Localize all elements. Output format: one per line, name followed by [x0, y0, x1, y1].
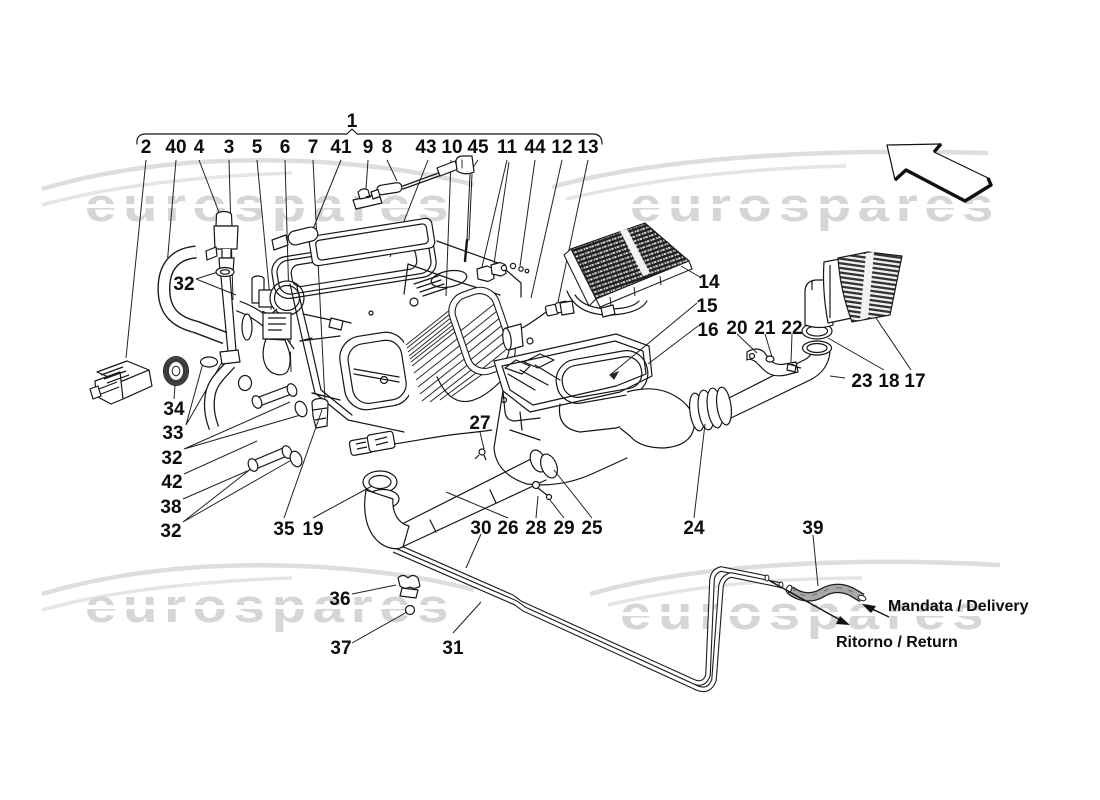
svg-text:18: 18	[878, 371, 899, 392]
svg-text:37: 37	[330, 638, 351, 659]
svg-text:35: 35	[273, 519, 295, 540]
svg-text:1: 1	[347, 111, 358, 132]
svg-text:32: 32	[160, 521, 181, 542]
svg-text:16: 16	[697, 320, 718, 341]
svg-text:4: 4	[194, 137, 205, 158]
svg-text:6: 6	[280, 137, 291, 158]
svg-text:21: 21	[754, 318, 776, 339]
svg-text:12: 12	[551, 137, 572, 158]
svg-text:5: 5	[252, 137, 263, 158]
svg-text:20: 20	[726, 318, 747, 339]
svg-text:33: 33	[162, 423, 183, 444]
svg-text:45: 45	[467, 137, 489, 158]
svg-text:28: 28	[525, 518, 546, 539]
svg-text:44: 44	[524, 137, 546, 158]
svg-text:13: 13	[577, 137, 598, 158]
svg-text:34: 34	[163, 399, 185, 420]
svg-text:42: 42	[161, 472, 182, 493]
svg-text:23: 23	[851, 371, 872, 392]
svg-text:9: 9	[363, 137, 374, 158]
svg-text:31: 31	[442, 638, 464, 659]
svg-text:17: 17	[904, 371, 925, 392]
svg-text:10: 10	[441, 137, 462, 158]
svg-text:8: 8	[382, 137, 393, 158]
svg-text:Mandata / Delivery: Mandata / Delivery	[888, 598, 1029, 615]
svg-text:30: 30	[470, 518, 491, 539]
svg-text:32: 32	[173, 274, 194, 295]
svg-text:7: 7	[308, 137, 319, 158]
svg-text:43: 43	[415, 137, 436, 158]
svg-text:24: 24	[683, 518, 705, 539]
svg-text:29: 29	[553, 518, 574, 539]
svg-text:38: 38	[160, 497, 181, 518]
svg-text:41: 41	[330, 137, 352, 158]
svg-text:32: 32	[161, 448, 182, 469]
svg-text:Ritorno / Return: Ritorno / Return	[836, 634, 958, 651]
svg-text:15: 15	[696, 296, 718, 317]
svg-text:36: 36	[329, 589, 350, 610]
svg-text:19: 19	[302, 519, 323, 540]
svg-text:22: 22	[781, 318, 802, 339]
svg-text:27: 27	[469, 413, 490, 434]
svg-text:11: 11	[497, 137, 518, 158]
svg-text:39: 39	[802, 518, 823, 539]
svg-text:25: 25	[581, 518, 603, 539]
svg-text:26: 26	[497, 518, 518, 539]
svg-text:14: 14	[698, 272, 720, 293]
svg-text:3: 3	[224, 137, 235, 158]
svg-text:2: 2	[141, 137, 152, 158]
svg-text:40: 40	[165, 137, 186, 158]
